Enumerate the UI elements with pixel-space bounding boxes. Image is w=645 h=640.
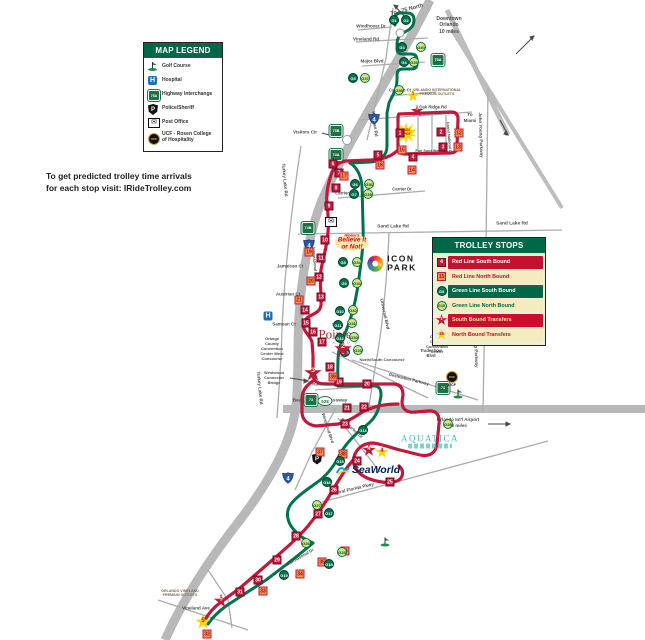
red-line-northbound-stop-33: 33 [259, 587, 268, 596]
green-line-northbound-stop-G33: G33 [352, 278, 362, 288]
legend-item-label: Police/Sheriff [162, 106, 194, 112]
red-line-northbound-stop-14: 14 [408, 166, 417, 175]
icon-park-line2: PARK [387, 264, 416, 273]
aquatica-logo: AQUATICA [401, 434, 459, 449]
green-line-northbound-stop-G40: G40 [416, 42, 426, 52]
red-line-southbound-stop-3: 3 [439, 143, 448, 152]
occc-west: OrangeCountyConventionCenter WestConcour… [260, 336, 283, 361]
highway-interchange-icon: 75A [148, 90, 159, 100]
ripleys-logo: Ripley's Believe It or Not! [338, 233, 367, 252]
northbound-transfer-star-4: 4 [375, 445, 389, 459]
red-line-southbound-stop-17: 17 [318, 338, 327, 347]
interchange-shield-icon: 74B [302, 222, 315, 234]
green-line-northbound-stop-G27: G27 [312, 500, 322, 510]
trolley-legend-row-rn: 15Red Line North Bound [435, 270, 543, 283]
red-line-northbound-stop-16: 16 [376, 161, 385, 170]
legend-item-label: Highway Interchange [162, 92, 212, 98]
green-line-southbound-stop-G2: G2 [401, 15, 411, 25]
southbound-transfer-star-3: 3 [304, 364, 322, 382]
rs-marker-icon: 4 [435, 256, 448, 269]
red-line-northbound-stop-12: 12 [455, 129, 464, 138]
golf-course-icon [381, 538, 390, 547]
red-line-southbound-stop-14: 14 [301, 306, 310, 315]
green-line-southbound-stop-G16: G16 [322, 477, 332, 487]
ts-marker-icon: 1 [435, 314, 448, 327]
red-line-southbound-stop-11: 11 [317, 254, 326, 263]
red-line-southbound-stop-5: 5 [374, 151, 383, 160]
green-line-southbound-stop-G3: G3 [397, 42, 407, 52]
trolley-route-map: To get predicted trolley time arrivals f… [0, 0, 645, 640]
traffic-circle-icon [396, 29, 405, 38]
red-line-southbound-stop-22: 22 [360, 403, 369, 412]
seaworld-label: SeaWorld [352, 464, 400, 476]
road-label: Windhover Dr [356, 24, 385, 29]
red-line-southbound-stop-6: 6 [329, 160, 338, 169]
road-label: Vineland Ave [182, 606, 210, 611]
red-line-southbound-stop-25: 25 [386, 478, 395, 487]
green-line-southbound-stop-G1: G1 [389, 15, 399, 25]
red-line-southbound-stop-9: 9 [325, 202, 334, 211]
green-line-southbound-stop-G7: G7 [349, 189, 359, 199]
trolley-legend-label: Red Line South Bound [448, 256, 543, 269]
trolley-legend-row-rs: 4Red Line South Bound [435, 256, 543, 269]
gs-marker-icon: G9 [435, 285, 448, 298]
legend-item-highway-interchange: 75AHighway Interchange [148, 90, 219, 100]
legend-item-label: Golf Course [162, 64, 191, 70]
seaworld-logo: SeaWorld [336, 464, 400, 476]
red-line-southbound-stop-10: 10 [321, 236, 330, 245]
trolley-legend-row-ts: 1South Bound Transfers [435, 314, 543, 327]
trolley-legend-row-tn: 15North Bound Transfers [435, 328, 543, 341]
red-line-northbound-stop-15: 15 [398, 146, 407, 155]
red-line-southbound-stop-27: 27 [314, 510, 323, 519]
green-line-northbound-stop-G26: G26 [301, 538, 311, 548]
southbound-transfer-star-2: 2 [334, 340, 352, 358]
road-label: Fun Spot Way [415, 149, 440, 153]
green-line-southbound-stop-G10: G10 [335, 306, 345, 316]
red-line-southbound-stop-1: 1 [396, 129, 405, 138]
green-line-northbound-stop-G35: G35 [363, 189, 373, 199]
southbound-transfer-star-1: 1 [411, 105, 424, 118]
red-line-southbound-stop-16: 16 [309, 328, 318, 337]
interstate-4-shield-icon: 4 [282, 471, 294, 489]
road-label: Carrier Dr [392, 187, 412, 192]
green-line-southbound-stop-G9: G9 [339, 278, 349, 288]
hospital-icon: H [148, 76, 159, 86]
trolley-legend-row-gs: G9Green Line South Bound [435, 285, 543, 298]
occc-ns-concourse: North/South Concourse [359, 357, 404, 362]
green-line-northbound-stop-G29: G29 [353, 345, 363, 355]
map-roads-and-routes [0, 0, 645, 640]
trolley-arrival-note: To get predicted trolley time arrivals f… [46, 170, 192, 195]
tradeshow-blvd: TradeshowBlvd [420, 348, 442, 359]
golf-course-icon [148, 62, 159, 72]
red-line-southbound-stop-24: 24 [353, 457, 362, 466]
westwood-bridge: WestwoodConnectorBridge [264, 370, 284, 385]
trolley-stops-title: TROLLEY STOPS [433, 238, 545, 253]
ferris-wheel-icon [367, 256, 383, 272]
map-legend-title: MAP LEGEND [144, 43, 222, 58]
green-line-northbound-stop-G37: G37 [360, 73, 370, 83]
red-line-southbound-stop-13: 13 [317, 293, 326, 302]
legend-item-label: Post Office [162, 120, 188, 126]
green-line-northbound-stop-G39: G39 [409, 57, 419, 67]
red-line-northbound-stop-37: 37 [316, 448, 325, 457]
gn-marker-icon: G15 [435, 299, 448, 312]
trolley-legend-row-gn: G15Green Line North Bound [435, 299, 543, 312]
tn-marker-icon: 15 [435, 328, 448, 341]
northbound-transfer-star-5: 5 [195, 614, 211, 630]
road-label: Major Blvd [360, 59, 383, 64]
post-office-icon: ✉ [148, 118, 159, 128]
red-line-northbound-stop-19: 19 [305, 248, 314, 257]
police-icon: P [148, 104, 159, 114]
road-label: Samoan Ct [272, 322, 296, 327]
green-line-southbound-stop-G5: G5 [348, 73, 358, 83]
trolley-stops-legend: TROLLEY STOPS 4Red Line South Bound15Red… [432, 237, 546, 346]
rn-marker-icon: 15 [435, 270, 448, 283]
red-line-northbound-stop-13: 13 [454, 143, 463, 152]
red-line-southbound-stop-20: 20 [363, 380, 372, 389]
seaworld-wave-icon [336, 465, 350, 475]
trolley-legend-label: Green Line North Bound [448, 299, 543, 312]
green-line-southbound-stop-G6: G6 [350, 179, 360, 189]
green-line-southbound-stop-G14: G14 [358, 425, 368, 435]
green-line-northbound-stop-G34: G34 [352, 257, 362, 267]
map-legend-items: Golf CourseHHospital75AHighway Interchan… [144, 58, 222, 151]
ripleys-line3: or Not! [338, 245, 367, 252]
southbound-transfer-star-4: 4 [362, 443, 376, 457]
green-line-northbound-stop-G36: G36 [364, 179, 374, 189]
trolley-legend-label: South Bound Transfers [448, 314, 543, 327]
green-line-northbound-stop-G38: G38 [394, 85, 404, 95]
red-line-southbound-stop-15: 15 [302, 319, 311, 328]
red-line-northbound-stop-17: 17 [340, 172, 349, 181]
red-line-southbound-stop-21: 21 [343, 404, 352, 413]
legend-item-police: PPolice/Sheriff [148, 104, 219, 114]
red-line-southbound-stop-2: 2 [437, 128, 446, 137]
interchange-shield-icon: 73 [305, 394, 318, 406]
post-office-icon: ✉ [325, 217, 337, 227]
red-line-northbound-stop-20: 20 [307, 277, 316, 286]
trolley-legend-label: North Bound Transfers [448, 328, 543, 341]
map-legend: MAP LEGEND Golf CourseHHospital75AHighwa… [143, 42, 223, 152]
legend-item-golf-course: Golf Course [148, 62, 219, 72]
green-line-northbound-stop-G32: G32 [348, 305, 358, 315]
ucf-icon: UCF [148, 133, 159, 143]
green-line-northbound-stop-G28: G28 [443, 419, 453, 429]
red-line-southbound-stop-18: 18 [326, 363, 335, 372]
green-line-southbound-stop-G11: G11 [333, 320, 343, 330]
note-line-1: To get predicted trolley time arrivals [46, 170, 192, 182]
red-line-southbound-stop-28: 28 [292, 532, 301, 541]
green-line-northbound-stop-G31: G31 [347, 318, 357, 328]
legend-item-ucf: UCFUCF - Rosen College of Hospitality [148, 132, 219, 144]
trolley-stops-rows: 4Red Line South Bound15Red Line North Bo… [433, 253, 545, 345]
red-line-southbound-stop-4: 4 [409, 153, 418, 162]
trolley-legend-label: Green Line South Bound [448, 285, 543, 298]
red-line-southbound-stop-31: 31 [236, 588, 245, 597]
red-line-southbound-stop-8: 8 [332, 184, 341, 193]
ucf-rosen-college-icon: UCFUCF [446, 371, 458, 387]
red-line-northbound-stop-34: 34 [296, 570, 305, 579]
aquatica-wave-icon [408, 444, 452, 449]
road-label: Sand Lake Rd [377, 225, 409, 230]
red-line-southbound-stop-29: 29 [273, 556, 282, 565]
legend-item-post-office: ✉Post Office [148, 118, 219, 128]
southbound-transfer-star-5: 5 [214, 594, 229, 609]
green-line-southbound-stop-G17: G17 [324, 508, 334, 518]
legend-item-hospital: HHospital [148, 76, 219, 86]
red-line-northbound-stop-21: 21 [295, 296, 304, 305]
interchange-shield-icon: 75A [432, 54, 445, 66]
interstate-4-shield-icon: 4 [368, 112, 380, 130]
green-line-southbound-stop-G18: G18 [324, 559, 334, 569]
green-line-southbound-stop-G8: G8 [338, 257, 348, 267]
road-label: Visitors Cir [293, 130, 317, 135]
road-label: Vineland Rd [353, 37, 379, 42]
green-line-southbound-stop-G19: G19 [279, 570, 289, 580]
interchange-shield-icon: 75B [330, 125, 343, 137]
red-line-southbound-stop-23: 23 [341, 420, 350, 429]
to-miami-note: ToMiami [464, 112, 477, 123]
icon-park-logo: ICON PARK [367, 255, 416, 274]
red-line-northbound-stop-39: 39 [329, 373, 338, 382]
red-line-southbound-stop-12: 12 [315, 273, 324, 282]
red-line-southbound-stop-26: 26 [330, 486, 339, 495]
traffic-circle-icon [342, 135, 352, 145]
premium-outlets-south: ORLANDO VINELANDPREMIUM OUTLETS [161, 589, 199, 598]
red-line-southbound-stop-30: 30 [254, 576, 263, 585]
premium-outlets-north: ORLANDO INTERNATIONALPREMIUM OUTLETS [413, 88, 461, 97]
state-road-528-shield-icon: 528 [318, 396, 333, 406]
downtown-note: DowntownOrlando10 miles [436, 16, 461, 35]
road-label: Jamaican Ct [277, 264, 304, 269]
legend-item-label: UCF - Rosen College of Hospitality [162, 132, 211, 144]
green-line-northbound-stop-G25: G25 [337, 547, 347, 557]
green-line-southbound-stop-G15: G15 [335, 456, 345, 466]
red-line-northbound-stop-32: 32 [203, 630, 212, 639]
golf-course-icon [454, 390, 463, 399]
hospital-icon: H [264, 312, 273, 321]
road-label: Sand Lake Rd [496, 222, 528, 227]
green-line-southbound-stop-G4: G4 [399, 57, 409, 67]
aquatica-label: AQUATICA [401, 434, 459, 444]
legend-item-label: Hospital [162, 78, 182, 84]
note-line-2: for each stop visit: IRideTrolley.com [46, 182, 192, 194]
northbound-transfer-star-1: 1 [407, 90, 420, 103]
trolley-legend-label: Red Line North Bound [448, 270, 543, 283]
